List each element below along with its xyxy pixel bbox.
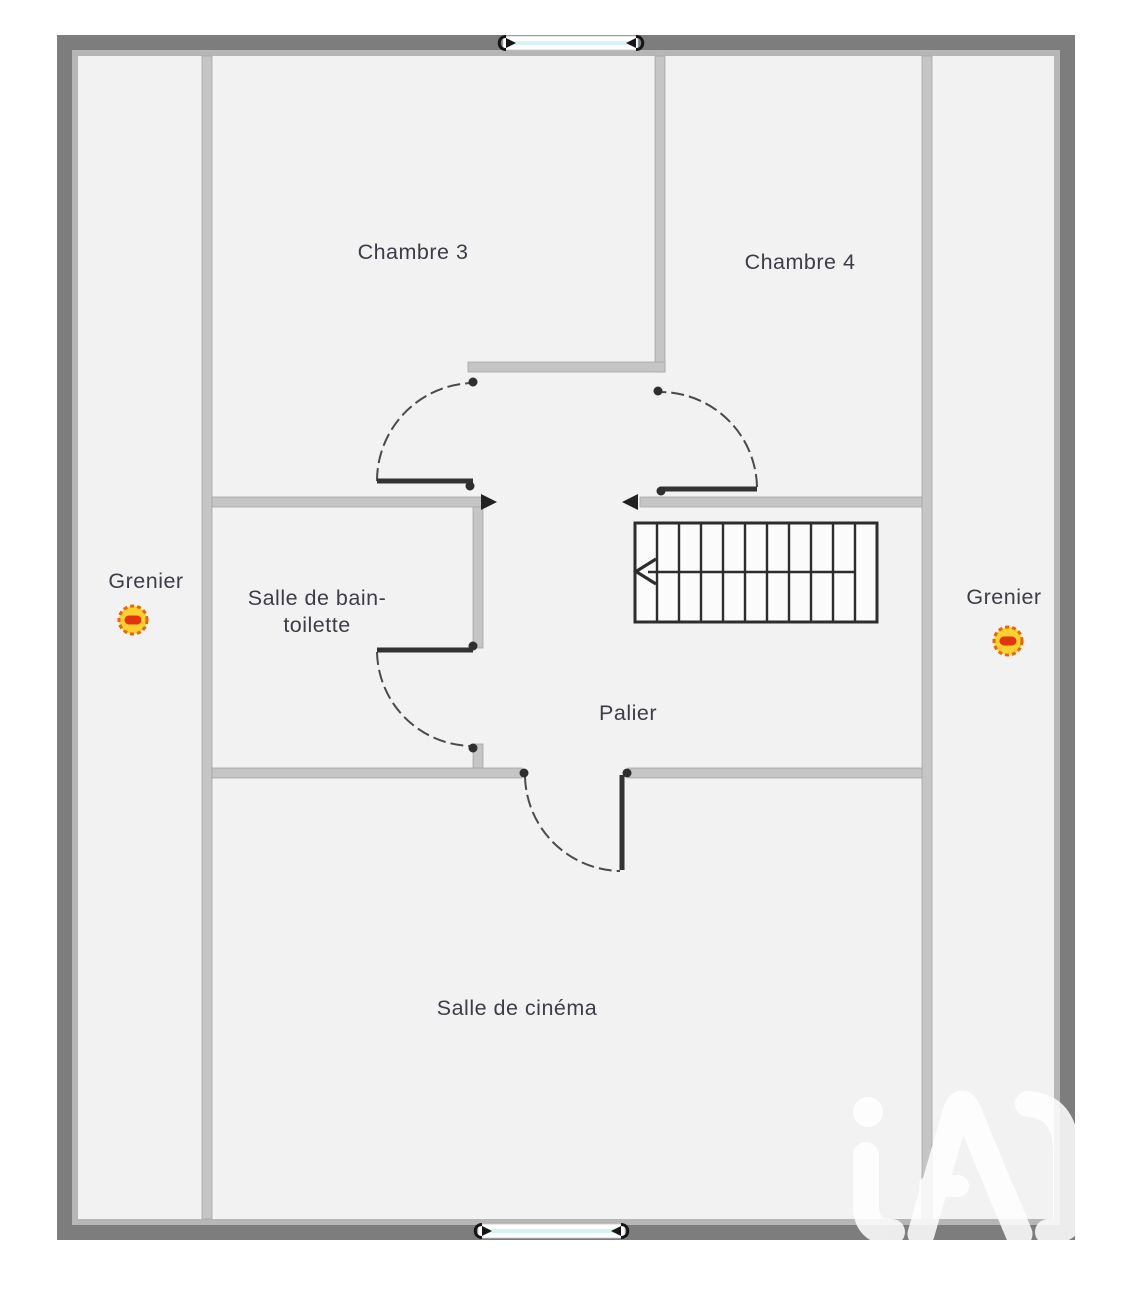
wall-palier-south — [628, 768, 922, 778]
wall-bathroom-east-upper — [473, 507, 483, 648]
label-palier: Palier — [599, 701, 657, 725]
label-cinema: Salle de cinéma — [437, 996, 597, 1020]
door-hinge-marker — [469, 642, 478, 651]
wall-left-strip — [202, 56, 212, 1219]
wall-hall-nook-top — [468, 362, 665, 372]
wall-ch3-ch4-divider — [655, 56, 665, 372]
window-bottom — [475, 1224, 628, 1238]
staircase — [635, 523, 877, 622]
label-bathroom-line2: toilette — [283, 613, 350, 637]
wall-right-strip — [922, 56, 932, 1219]
label-chambre3: Chambre 3 — [358, 240, 469, 264]
door-hinge-marker — [623, 769, 632, 778]
door-hinge-marker — [469, 378, 478, 387]
door-hinge-marker — [654, 387, 663, 396]
door-hinge-marker — [469, 744, 478, 753]
grenier-hatch-icon-right — [994, 627, 1022, 655]
grenier-hatch-icon-left — [119, 606, 147, 634]
window-top — [499, 36, 643, 50]
wall-cinema-north-left — [212, 768, 522, 778]
label-grenier-left: Grenier — [108, 569, 183, 593]
label-grenier-right: Grenier — [966, 585, 1041, 609]
wall-palier-north — [640, 497, 922, 507]
floor-plan-svg: Chambre 3 Chambre 4 Salle de bain- toile… — [0, 0, 1133, 1291]
wall-chambre3-south — [212, 497, 483, 507]
label-chambre4: Chambre 4 — [745, 250, 856, 274]
door-hinge-marker — [466, 482, 475, 491]
watermark-i-dot — [853, 1097, 883, 1127]
page: Chambre 3 Chambre 4 Salle de bain- toile… — [0, 0, 1133, 1291]
door-hinge-marker — [657, 487, 666, 496]
label-bathroom-line1: Salle de bain- — [248, 586, 386, 610]
floor-area — [78, 56, 1054, 1219]
door-hinge-marker — [520, 769, 529, 778]
